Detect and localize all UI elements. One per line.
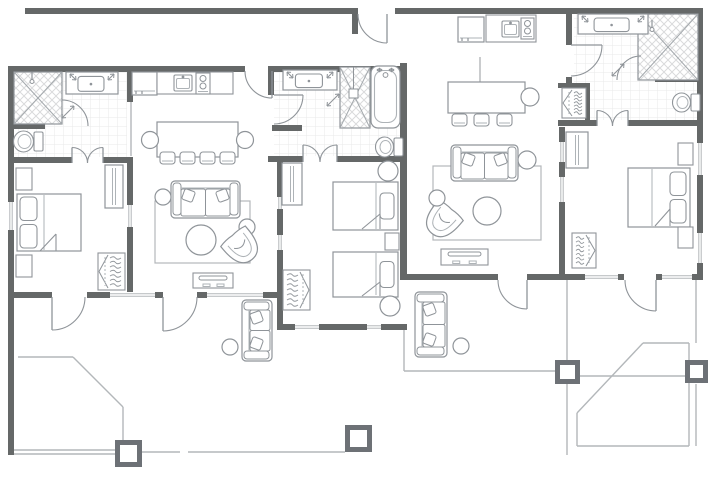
dining1-chair	[220, 152, 235, 164]
patio-line	[73, 357, 123, 407]
side-table	[380, 296, 400, 316]
patio-line	[577, 343, 643, 413]
bath2-toilet	[376, 137, 404, 157]
bedroom1-closet	[98, 253, 125, 290]
patio-post	[558, 363, 578, 382]
bedroom2-dresser	[282, 163, 302, 205]
dining2-chair	[474, 114, 489, 126]
patio2-sofa	[415, 292, 447, 357]
living2-armchair	[419, 199, 464, 244]
bedroom2-closet	[283, 270, 310, 310]
bedroom1-bed	[17, 194, 81, 251]
wall	[272, 125, 302, 131]
window	[127, 205, 133, 227]
wall	[395, 8, 703, 14]
window	[585, 274, 618, 280]
wall	[400, 63, 407, 280]
window	[662, 274, 692, 280]
nightstand	[16, 255, 32, 277]
dining1-chair	[180, 152, 195, 164]
bedroom2-bed-a	[333, 182, 398, 230]
wall	[8, 66, 14, 297]
kitchen1-fridge	[132, 72, 157, 95]
wall	[25, 8, 355, 14]
window	[697, 143, 703, 175]
window	[367, 324, 381, 330]
bedroom3-closet	[572, 233, 596, 268]
nightstand	[385, 233, 399, 250]
living2-tv-console	[441, 249, 488, 265]
window	[8, 202, 14, 230]
bath1-vanity	[66, 72, 118, 94]
dining1-end-chair	[142, 132, 159, 149]
kitchen1-sink	[174, 75, 192, 91]
kitchen2-fridge	[458, 17, 484, 42]
wall	[628, 120, 703, 126]
window	[559, 177, 565, 202]
dining2-chair	[452, 114, 467, 126]
living1-patio-door	[163, 297, 197, 331]
wall	[558, 120, 597, 126]
window	[110, 292, 155, 298]
wall	[566, 14, 572, 45]
bath3-toilet	[673, 93, 701, 112]
nightstand	[678, 227, 693, 248]
wall	[400, 274, 498, 280]
living2-sofa	[451, 145, 518, 181]
window	[559, 142, 565, 162]
window	[295, 324, 319, 330]
patio-post	[688, 363, 706, 381]
wall	[8, 292, 52, 298]
patio2-side-table	[453, 338, 469, 354]
living2-patio-door	[498, 280, 527, 309]
hall-closet	[562, 88, 586, 118]
bedroom3-bed	[628, 168, 690, 227]
living1-coffee-table	[186, 225, 216, 255]
floorplan-svg	[0, 0, 720, 480]
patio-post	[118, 443, 140, 465]
dining2-table	[448, 82, 525, 113]
nightstand	[678, 143, 693, 165]
front-entry-door	[358, 14, 387, 43]
dining2-chair	[497, 114, 512, 126]
bedroom1-dresser	[105, 165, 123, 208]
wall	[8, 157, 72, 163]
living1-sofa	[171, 181, 240, 218]
wall	[566, 77, 572, 83]
dining1-chair	[160, 152, 175, 164]
kitchen1-counter	[157, 72, 233, 94]
kitchen1-stove	[196, 73, 210, 94]
window	[277, 235, 283, 250]
bedroom2-bed-b	[333, 252, 398, 297]
wall	[10, 124, 45, 129]
nightstand	[16, 168, 32, 190]
wall	[8, 297, 14, 455]
living1-tv-console	[193, 273, 233, 288]
dining2-end-chair	[521, 88, 539, 106]
dining1-end-chair	[237, 132, 254, 149]
bath3-vanity	[578, 14, 648, 34]
wall	[352, 8, 358, 34]
bedroom3-dresser	[566, 132, 588, 168]
bedroom3-patio-door	[625, 280, 656, 311]
dining1-chair	[200, 152, 215, 164]
window	[207, 292, 263, 298]
bedroom1-patio-door	[52, 297, 85, 330]
bath2-vanity	[283, 70, 337, 90]
patio1-sofa	[242, 300, 272, 361]
kitchen2-sink	[502, 21, 519, 37]
window	[697, 233, 703, 263]
side-table	[378, 161, 398, 181]
patio-post	[348, 428, 370, 450]
kitchen2-stove	[521, 18, 534, 39]
side-table	[429, 190, 445, 206]
side-table	[155, 189, 171, 205]
bath2-tub	[371, 66, 400, 128]
unit1-entry-door	[245, 71, 272, 98]
floorplan	[0, 0, 720, 480]
side-table	[518, 151, 536, 169]
wall	[268, 66, 274, 95]
patio1-side-table	[222, 339, 238, 355]
bath1-toilet	[14, 131, 44, 152]
wall	[268, 156, 303, 162]
living2-coffee-table	[473, 197, 501, 225]
wall	[8, 66, 245, 72]
